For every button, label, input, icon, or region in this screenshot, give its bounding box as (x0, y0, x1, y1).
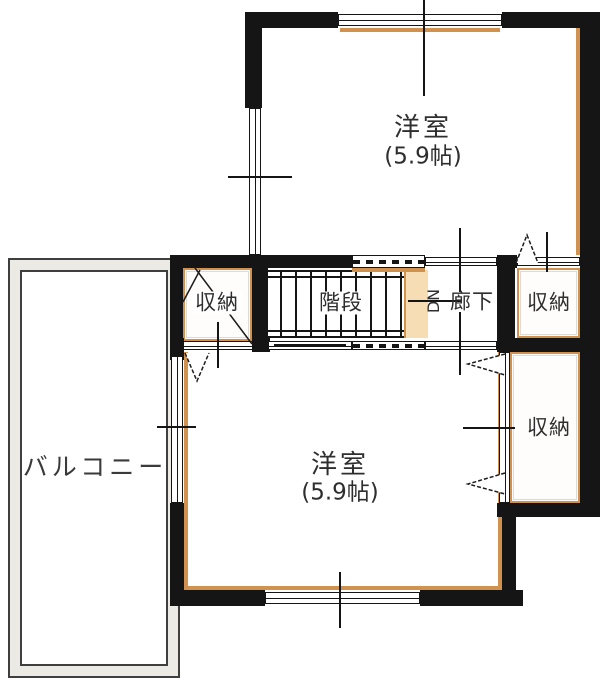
room-size-bedroom-bottom: (5.9帖) (301, 482, 379, 505)
floor-plan: 洋室 (5.9帖) 収納 階段 DN 廊下 収納 収納 洋室 (5.9帖) バル… (0, 0, 602, 685)
room-label-balcony: バルコニー (23, 455, 168, 480)
room-label-bedroom-bottom: 洋室 (311, 452, 369, 478)
plan-annotations (0, 0, 602, 685)
folding-door-icon-closet-br-top (468, 354, 505, 375)
folding-door-icon-closet-br-bottom (468, 473, 505, 494)
room-label-closet-bottom-right: 収納 (527, 418, 571, 439)
folding-door-icon-closet-mid-left (185, 353, 209, 381)
room-size-bedroom-top: (5.9帖) (384, 146, 462, 169)
folding-door-icon-closet-mid-right (516, 235, 538, 263)
room-label-closet-mid-left: 収納 (192, 292, 242, 315)
room-label-hallway: 廊下 (450, 292, 494, 313)
room-label-stairs: 階段 (316, 292, 366, 315)
room-label-closet-mid-right: 収納 (527, 293, 571, 314)
stairs-dn-mark: DN (426, 289, 442, 313)
room-label-bedroom-top: 洋室 (394, 115, 452, 141)
